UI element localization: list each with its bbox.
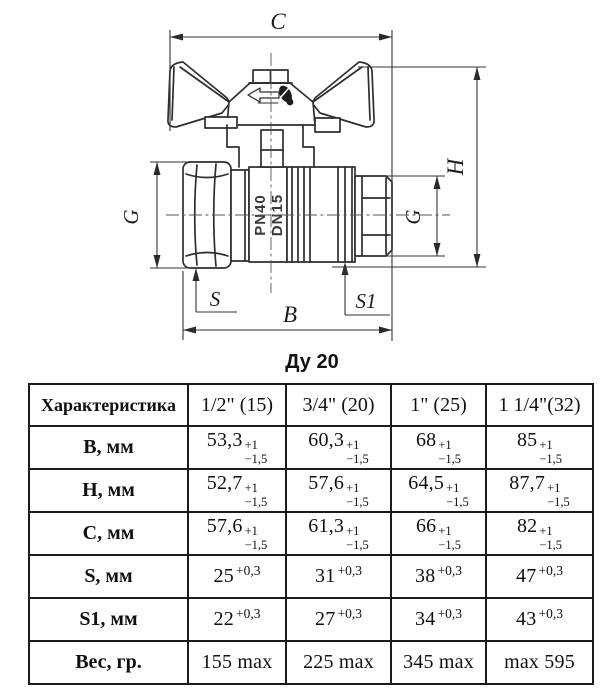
value-cell: 57,6+1−1,5 [286,469,391,512]
value-cell: 43+0,3 [486,598,593,641]
row-label: B, мм [29,426,188,469]
collar [231,170,249,261]
header-size-4: 1 1/4"(32) [486,384,593,426]
value-cell: 34+0,3 [391,598,486,641]
row-label: H, мм [29,469,188,512]
value-cell: 87,7+1−1,5 [486,469,593,512]
value-cell: 60,3+1−1,5 [286,426,391,469]
row-label: Вес, гр. [29,641,188,684]
value-cell: 61,3+1−1,5 [286,512,391,555]
value-cell: 85+1−1,5 [486,426,593,469]
header-size-3: 1" (25) [391,384,486,426]
stem [261,130,283,167]
dimension-g-right: G [385,176,445,256]
value-cell: 38+0,3 [391,555,486,598]
value-cell: 57,6+1−1,5 [188,512,286,555]
value-cell: 345 max [391,641,486,684]
table-row: C, мм57,6+1−1,561,3+1−1,566+1−1,582+1−1,… [29,512,593,555]
table-row: S1, мм22+0,327+0,334+0,343+0,3 [29,598,593,641]
valve-technical-drawing: PN40 DN15 C H [0,0,616,383]
row-label: S, мм [29,555,188,598]
table-header-row: Характеристика1/2" (15)3/4" (20)1" (25)1… [29,384,593,426]
valve-datasheet-page: PN40 DN15 C H [0,0,616,700]
nominal-bore-caption: Ду 20 [285,351,338,373]
table-row: S, мм25+0,331+0,338+0,347+0,3 [29,555,593,598]
dimension-s-label: S [210,287,221,311]
dimension-b-label: B [283,302,297,327]
value-cell: 64,5+1−1,5 [391,469,486,512]
dimension-g-left-label: G [119,209,143,224]
value-cell: 52,7+1−1,5 [188,469,286,512]
value-cell: 22+0,3 [188,598,286,641]
row-label: S1, мм [29,598,188,641]
spec-table: Характеристика1/2" (15)3/4" (20)1" (25)1… [28,383,594,685]
leader-s: S [193,268,238,312]
value-cell: 68+1−1,5 [391,426,486,469]
table-row: H, мм52,7+1−1,557,6+1−1,564,5+1−1,587,7+… [29,469,593,512]
header-size-1: 1/2" (15) [188,384,286,426]
dimension-s1-label: S1 [356,289,377,313]
value-cell: 225 max [286,641,391,684]
value-cell: 53,3+1−1,5 [188,426,286,469]
value-cell: max 595 [486,641,593,684]
dimension-c-label: C [270,9,286,34]
right-stop-lug [315,118,340,132]
spec-table-body: Характеристика1/2" (15)3/4" (20)1" (25)1… [29,384,593,684]
table-row: B, мм53,3+1−1,560,3+1−1,568+1−1,585+1−1,… [29,426,593,469]
header-size-2: 3/4" (20) [286,384,391,426]
header-characteristic: Характеристика [29,384,188,426]
valve-drawing-area: PN40 DN15 C H [0,0,616,383]
leader-s1: S1 [342,262,391,315]
dimension-h-label: H [443,157,468,176]
value-cell: 31+0,3 [286,555,391,598]
dimension-g-right-label: G [401,209,425,224]
table-row: Вес, гр.155 max225 max345 maxmax 595 [29,641,593,684]
value-cell: 66+1−1,5 [391,512,486,555]
value-cell: 27+0,3 [286,598,391,641]
value-cell: 25+0,3 [188,555,286,598]
value-cell: 47+0,3 [486,555,593,598]
value-cell: 155 max [188,641,286,684]
left-stop-lug [205,117,237,128]
value-cell: 82+1−1,5 [486,512,593,555]
row-label: C, мм [29,512,188,555]
